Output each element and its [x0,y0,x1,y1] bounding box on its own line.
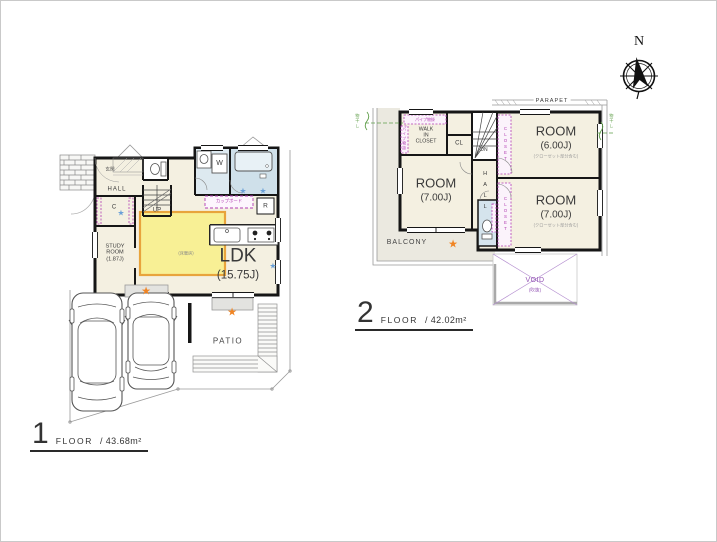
star-marker-blue: ★ [259,187,266,196]
washbasin-icon [197,151,211,168]
compass-rose-icon [606,30,670,102]
cupboard-box [205,196,253,208]
compass: N [606,30,670,102]
floorplan-canvas: 玄関 HALL UP C STUDY ROOM (1.87J) LDK (15.… [0,0,717,542]
floor1-plan-drawing [55,128,300,428]
star-marker-blue: ★ [239,187,246,196]
washer-box [212,154,227,173]
floor1-caption: 1 FLOOR / 43.68m² [30,422,148,452]
floor1-floor-label: FLOOR [56,436,93,447]
car-2 [125,293,177,389]
brick-wall [60,155,95,214]
patio-wall [188,303,192,343]
refrigerator-box [257,198,274,214]
toilet-shelf-strip [492,204,496,232]
toilet2-icon [482,220,492,239]
star-marker: ★ [448,238,458,251]
floor2-area: / 42.02m² [425,315,467,326]
kitchen-counter [210,225,278,245]
star-marker-blue: ★ [117,209,124,218]
floor2-plan-drawing [345,88,620,323]
floor1-number: 1 [32,422,49,447]
star-marker-blue: ★ [269,262,276,271]
star-marker: ★ [227,306,237,319]
pipe-rack-top [404,115,446,124]
floor1-area: / 43.68m² [100,436,142,447]
pipe-rack-left [401,126,408,153]
floor2-plan: PARAPET WALK IN CLOSET パイプ物掛 パイプ物掛 CL DN… [345,88,620,323]
car-1 [69,293,125,411]
floor1-plan: 玄関 HALL UP C STUDY ROOM (1.87J) LDK (15.… [55,128,300,428]
stairs2-floor [473,113,496,159]
floor2-caption: 2 FLOOR / 42.02m² [355,301,473,331]
star-marker: ★ [141,285,151,298]
floor2-number: 2 [357,301,374,326]
floor2-floor-label: FLOOR [381,315,418,326]
void-area [493,254,577,305]
